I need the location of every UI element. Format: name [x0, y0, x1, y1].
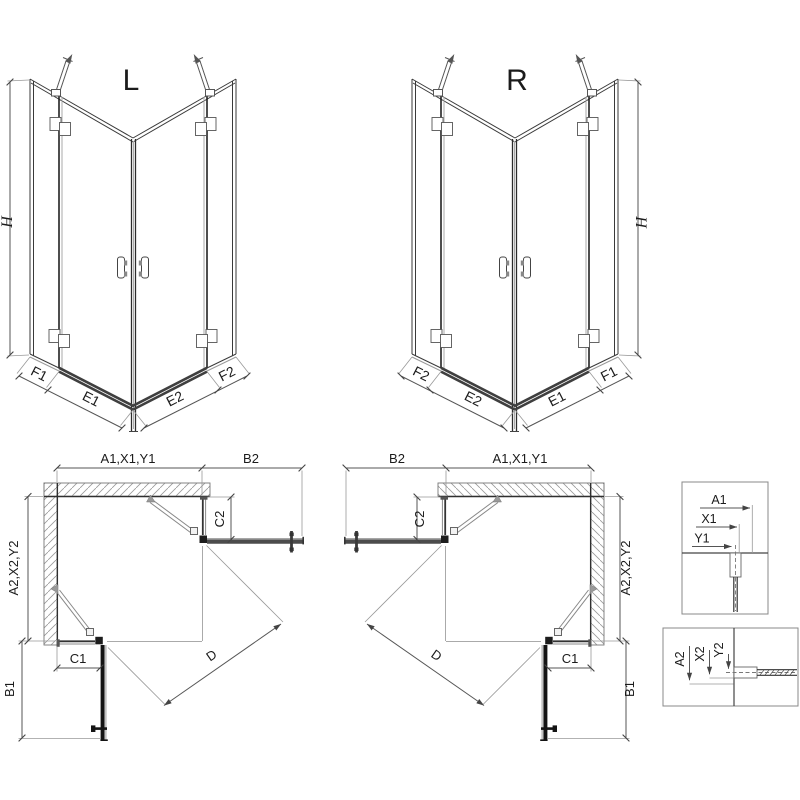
- iso-right-dim-f2: F2: [410, 363, 432, 385]
- plan-right-dim-d: D: [428, 646, 444, 664]
- detail-wall-dim-x1: X1: [701, 512, 716, 526]
- plan-left-dim-b2: B2: [243, 451, 259, 466]
- detail-floor-dim-a2: A2: [673, 651, 687, 666]
- plan-view-left: [19, 465, 306, 742]
- plan-left-dim-depth: A2,X2,Y2: [6, 541, 21, 596]
- plan-view-right: [343, 465, 630, 742]
- plan-right-dim-depth: A2,X2,Y2: [618, 541, 633, 596]
- plan-left-dim-width: A1,X1,Y1: [101, 451, 156, 466]
- plan-right-dim-c2: C2: [412, 511, 427, 528]
- iso-left-dim-f2: F2: [216, 363, 238, 385]
- iso-left-dim-f1: F1: [28, 363, 50, 385]
- plan-right-dim-c1: C1: [562, 651, 579, 666]
- iso-left-height-label: H: [0, 215, 16, 229]
- plan-left-dim-c1: C1: [70, 651, 87, 666]
- shower-enclosure-technical-diagram: L H F1 E1 E2 F2 R H F2 E2 E1 F1 A1,X1,Y1…: [0, 0, 800, 800]
- iso-right-title: R: [506, 64, 528, 97]
- detail-wall-dim-y1: Y1: [694, 532, 709, 546]
- plan-left-dim-d: D: [203, 646, 219, 664]
- detail-floor-dim-y2: Y2: [712, 642, 726, 657]
- detail-wall-dim-a1: A1: [711, 493, 726, 507]
- iso-left-title: L: [123, 64, 140, 97]
- plan-right-dim-b2: B2: [389, 451, 405, 466]
- iso-right-height-label: H: [632, 215, 649, 229]
- detail-floor-dim-x2: X2: [693, 646, 707, 661]
- plan-right-dim-width: A1,X1,Y1: [493, 451, 548, 466]
- plan-left-dim-c2: C2: [212, 511, 227, 528]
- iso-right-dim-f1: F1: [598, 363, 620, 385]
- plan-right-dim-b1: B1: [622, 681, 637, 697]
- plan-left-dim-b1: B1: [2, 681, 17, 697]
